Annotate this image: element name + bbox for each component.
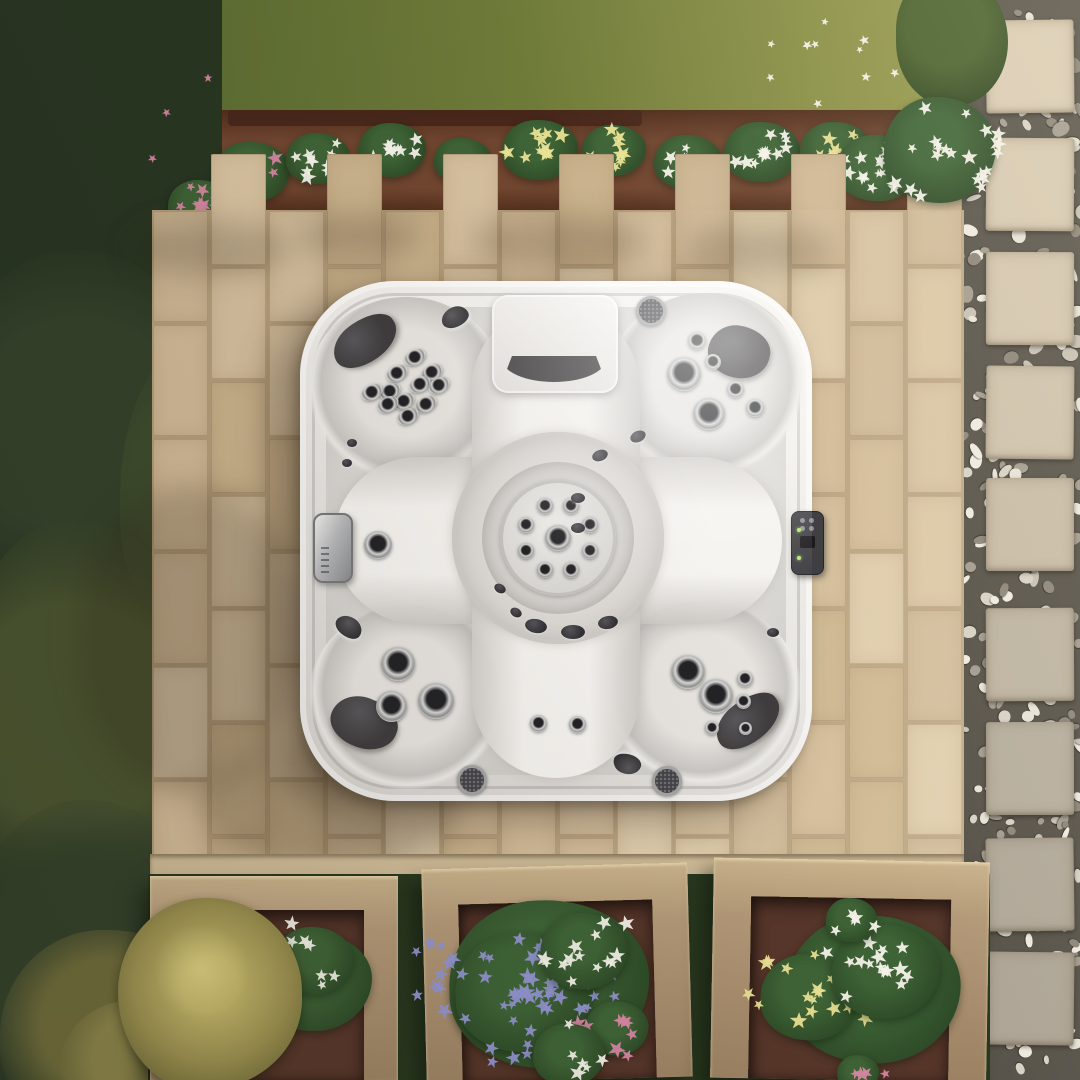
patio-tile: [211, 268, 266, 379]
jet-round: [705, 354, 721, 370]
jet-round: [376, 691, 407, 722]
pebble: [1025, 933, 1033, 948]
pebble: [962, 625, 977, 638]
footwell-disc: [500, 480, 616, 596]
pebble: [1044, 1055, 1050, 1064]
ornamental-grass: [118, 898, 302, 1080]
panel-display: [800, 536, 815, 548]
control-panel: [791, 511, 824, 575]
jet-round: [693, 398, 725, 430]
footwell-jet: [518, 543, 534, 559]
panel-led: [797, 556, 801, 560]
patio-tile: [907, 382, 962, 493]
jet-round: [705, 721, 719, 735]
bed-edging: [228, 110, 642, 126]
speaker-grille: [321, 547, 329, 573]
tree-shadow-dapple: [470, 216, 650, 268]
pebble: [1021, 711, 1035, 723]
footwell-jet: [563, 562, 579, 578]
suction-fitting: [347, 439, 357, 447]
tree-shadow-dapple: [295, 214, 425, 258]
jet-round: [530, 715, 547, 732]
patio-tile: [849, 325, 904, 436]
jet-round: [737, 671, 753, 687]
suction-fitting: [767, 628, 779, 637]
lawn: [222, 0, 966, 124]
suction-fitting: [571, 493, 585, 503]
pebble: [1005, 825, 1017, 837]
jet-round: [727, 381, 744, 398]
pebble: [1073, 478, 1080, 492]
jet-round: [688, 332, 706, 350]
patio-tile: [849, 439, 904, 550]
panel-led: [797, 528, 801, 532]
patio-tile: [211, 382, 266, 493]
patio-tile: [849, 211, 904, 322]
tree-shadow-dapple: [130, 221, 290, 275]
speaker-cap: [457, 765, 487, 795]
panel-button: [800, 518, 805, 523]
patio-tile: [153, 325, 208, 436]
pebble: [998, 117, 1008, 128]
footwell-jet: [537, 562, 553, 578]
grass-highlight: [151, 925, 252, 1017]
pebble: [1019, 573, 1033, 584]
pebble: [1021, 118, 1034, 132]
stepping-stone: [985, 951, 1074, 1045]
pebble: [969, 813, 979, 824]
pebble: [1013, 8, 1023, 16]
stepping-stone: [986, 478, 1074, 571]
footwell-jet: [582, 543, 598, 559]
suction-fitting: [571, 523, 585, 533]
speaker-cap: [652, 766, 682, 796]
pebble: [975, 785, 983, 792]
jet-round: [381, 647, 415, 681]
speaker-cap: [636, 296, 666, 326]
pebble: [1074, 638, 1080, 648]
pebble: [1074, 203, 1080, 221]
patio-tile: [907, 610, 962, 721]
foliage-clump: [825, 897, 877, 942]
patio-tile: [849, 553, 904, 664]
jet-round: [746, 399, 764, 417]
pebble: [1041, 579, 1056, 595]
footwell-jet: [582, 517, 598, 533]
suction-fitting: [561, 625, 585, 639]
footwell-jet: [518, 517, 534, 533]
stepping-stone: [986, 608, 1075, 701]
tree-shadow-dapple: [685, 226, 835, 274]
jet-round: [569, 716, 586, 733]
planter-middle: [421, 863, 693, 1080]
stepping-stone: [986, 722, 1074, 815]
stepping-stone: [985, 366, 1074, 460]
suction-fitting: [342, 459, 352, 467]
footwell-drain: [545, 525, 571, 551]
pebble: [1013, 1061, 1026, 1075]
footwell-jet: [537, 498, 553, 514]
headrest-pillow: [502, 336, 606, 382]
patio-tile: [907, 496, 962, 607]
stepping-stone: [986, 252, 1074, 345]
pebble: [1035, 817, 1045, 827]
pebble: [968, 664, 982, 678]
jet-round: [736, 694, 751, 709]
patio-tile: [907, 724, 962, 835]
jet-round: [418, 683, 454, 719]
hot-tub: [300, 281, 812, 801]
pebble: [963, 561, 976, 574]
pebble: [1073, 869, 1080, 884]
panel-button: [809, 526, 814, 531]
pebble: [1068, 938, 1080, 949]
jet-round: [671, 655, 705, 689]
side-jet: [364, 531, 392, 559]
patio-tile: [849, 667, 904, 778]
waterfall-speaker: [313, 513, 353, 583]
pebble: [1006, 818, 1015, 825]
jet-round: [699, 679, 733, 713]
pebble: [968, 315, 978, 323]
patio-tile: [907, 268, 962, 379]
pebble: [966, 508, 975, 520]
garden-scene: [0, 0, 1080, 1080]
pebble: [1003, 350, 1020, 365]
jet-round: [739, 722, 752, 735]
panel-button: [809, 518, 814, 523]
jet-round: [667, 357, 701, 391]
stepping-stone: [985, 837, 1074, 931]
planter-right: [710, 858, 990, 1080]
